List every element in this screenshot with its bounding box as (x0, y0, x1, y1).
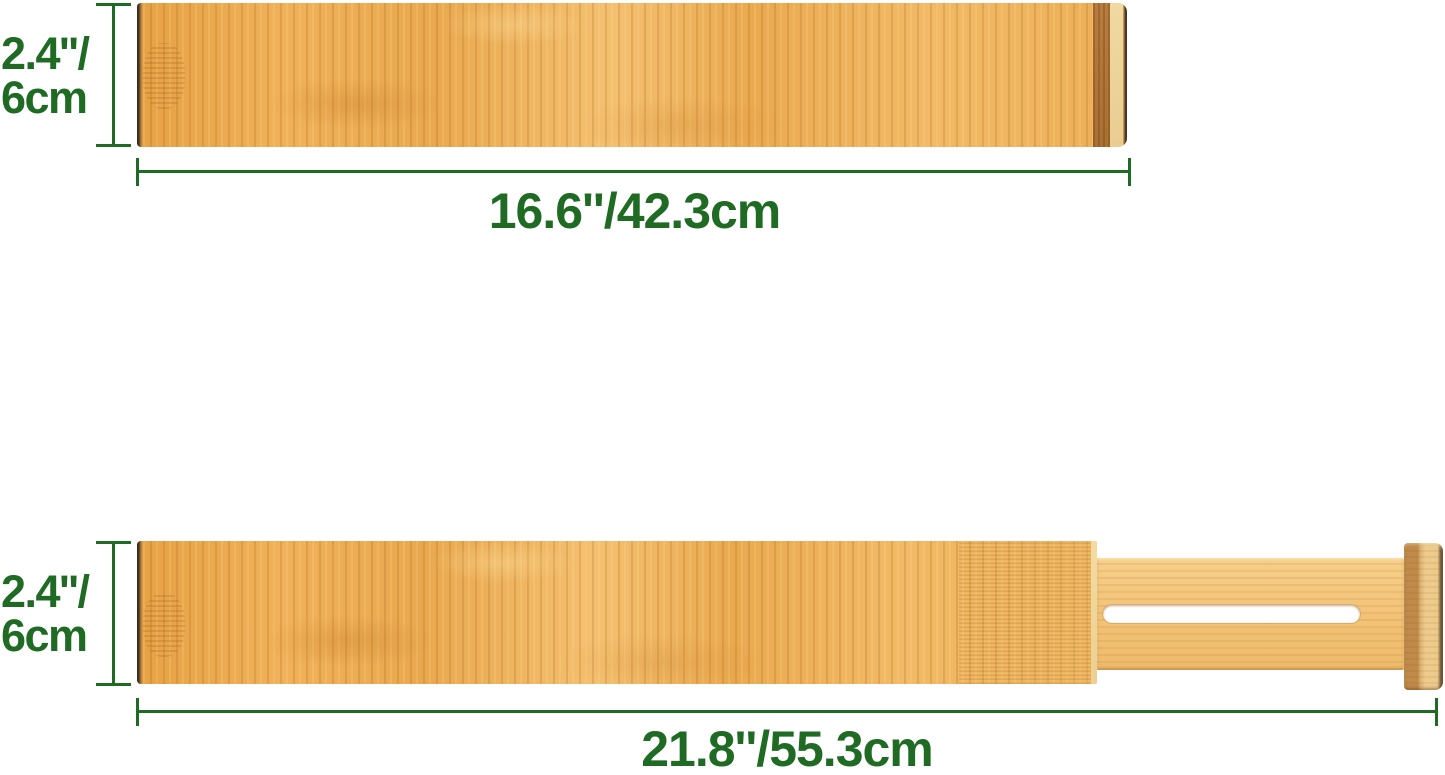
height-label-line1: 2.4''/ (1, 32, 111, 76)
extension-arm (1097, 558, 1404, 670)
dimension-line-stroke (139, 170, 1128, 173)
drawer-divider-extended-body (137, 541, 1097, 684)
height-label-line1: 2.4''/ (1, 570, 111, 614)
spring-end-cap (1404, 543, 1443, 690)
wood-knot (143, 43, 185, 109)
divider-end-light-stripe (1110, 3, 1123, 147)
dimension-line-stroke (112, 6, 115, 144)
divider-left-edge (137, 541, 143, 684)
width-dimension-label: 16.6''/42.3cm (137, 182, 1132, 240)
divider-right-edge (1123, 3, 1127, 147)
height-dimension-line (96, 541, 131, 686)
height-dimension-line (96, 3, 131, 147)
height-label-line2: 6cm (1, 76, 111, 120)
height-dimension-label: 2.4''/ 6cm (1, 32, 111, 120)
height-dimension-label: 2.4''/ 6cm (1, 570, 111, 658)
divider-end-brown-stripe (1093, 3, 1110, 147)
drawer-divider-compressed (137, 3, 1127, 147)
width-dimension-label: 21.8''/55.3cm (137, 720, 1437, 775)
adjustment-slot (1103, 605, 1360, 623)
dimension-line-stroke (139, 710, 1435, 713)
divider-endgrain-texture (959, 541, 1091, 684)
product-dimension-diagram: 2.4''/ 6cm 16.6''/42.3cm 2.4''/ 6cm (0, 0, 1445, 775)
dimension-line-stroke (112, 544, 115, 683)
wood-knot (143, 593, 185, 657)
height-label-line2: 6cm (1, 614, 111, 658)
